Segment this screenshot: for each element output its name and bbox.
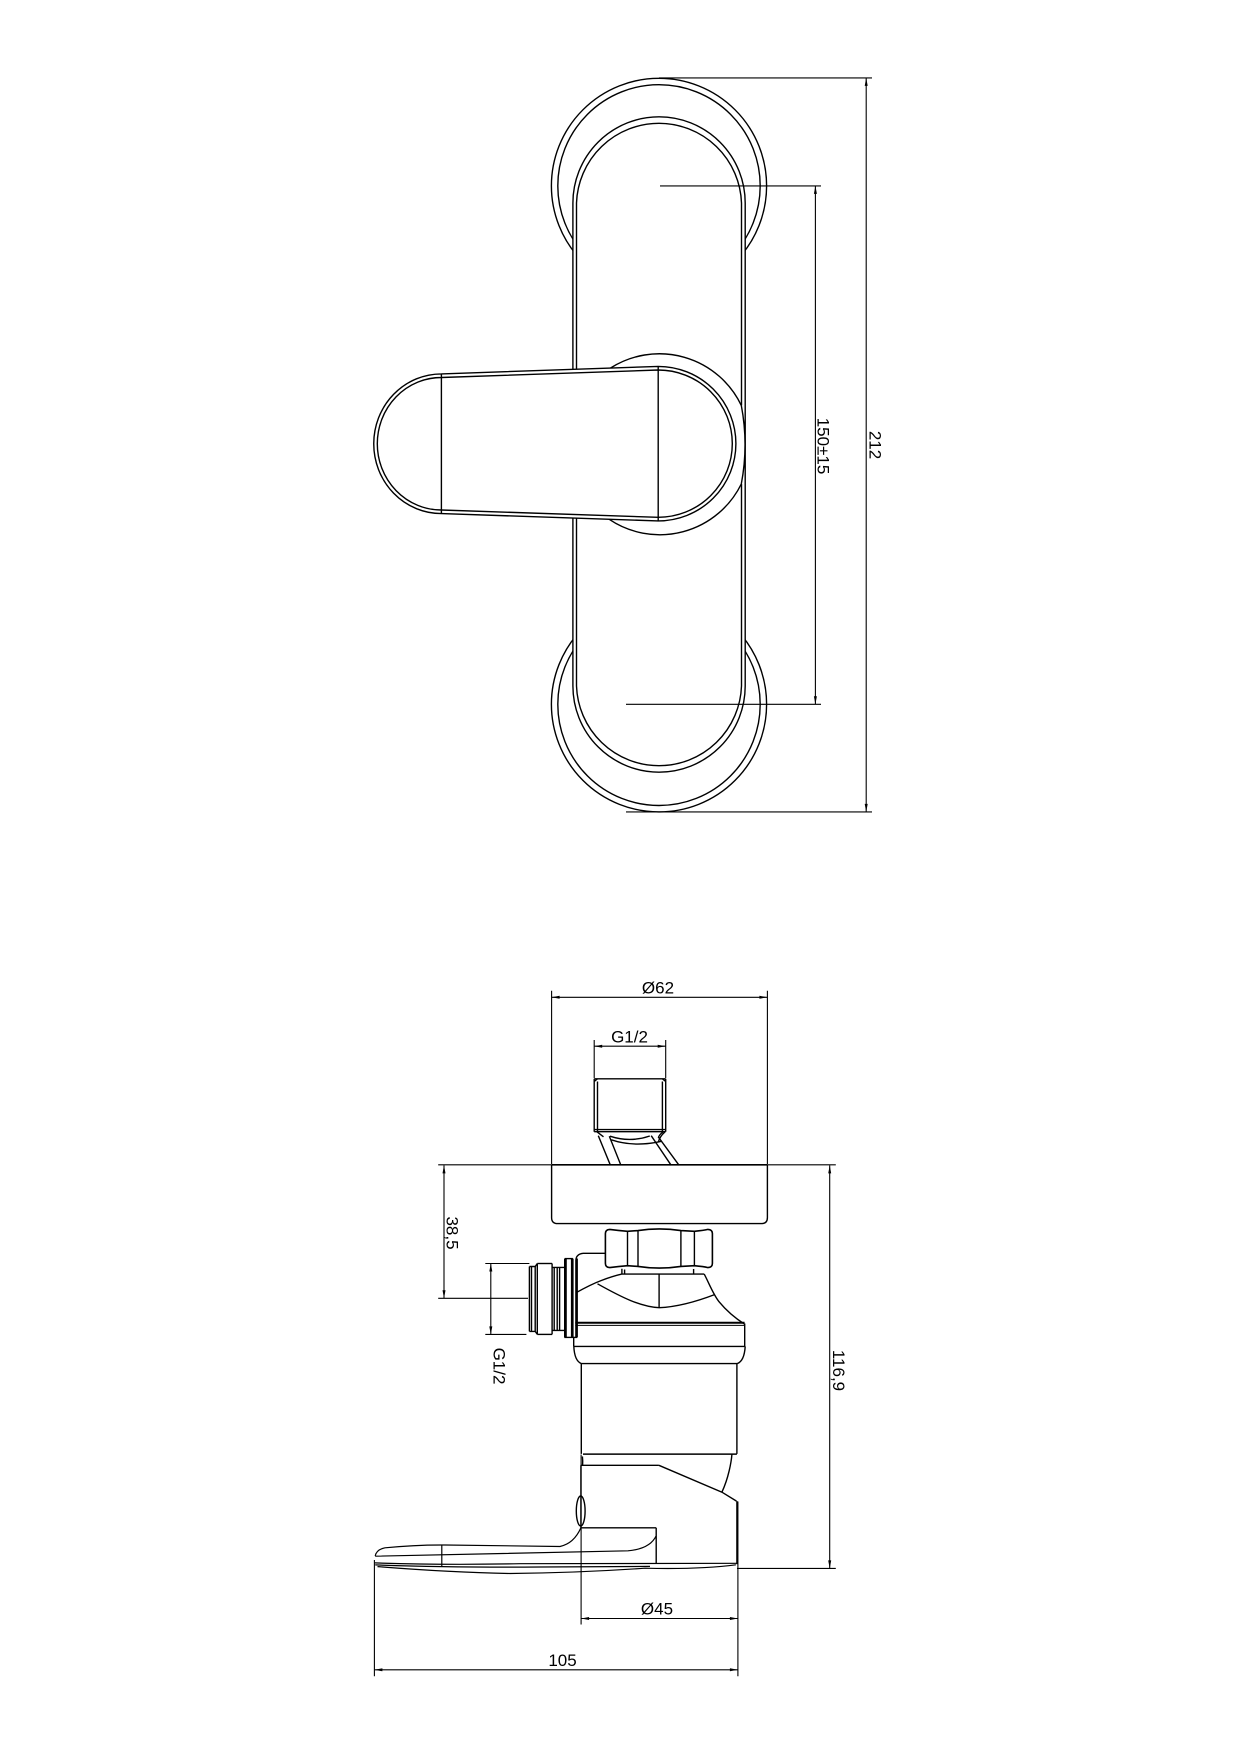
svg-text:Ø62: Ø62 (642, 979, 674, 998)
svg-text:Ø45: Ø45 (641, 1600, 673, 1619)
svg-text:G1/2: G1/2 (611, 1028, 648, 1047)
svg-text:105: 105 (548, 1651, 576, 1670)
svg-text:116,9: 116,9 (829, 1350, 848, 1391)
svg-text:G1/2: G1/2 (490, 1348, 509, 1385)
svg-text:212: 212 (866, 431, 885, 459)
svg-text:38,5: 38,5 (443, 1216, 462, 1249)
svg-text:150±15: 150±15 (813, 418, 832, 475)
